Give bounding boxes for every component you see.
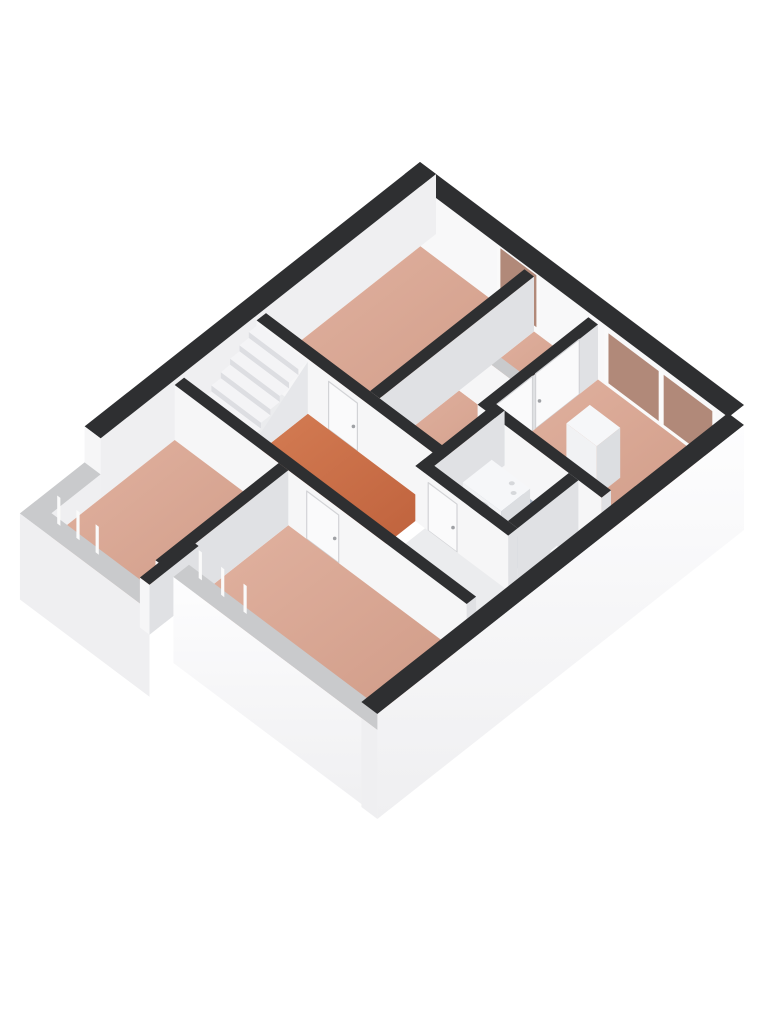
- window-bottom-low-post-2: [244, 584, 247, 614]
- se-wall-end-face: [361, 718, 377, 819]
- floor-plan-3d: [0, 0, 768, 1024]
- window-right-double-mullion: [659, 367, 664, 427]
- door-bathroom-handle: [451, 526, 455, 530]
- window-right-double-frame-left: [604, 326, 608, 385]
- floor-plan-stage: [0, 0, 768, 1024]
- window-left-low-post-0: [57, 496, 60, 526]
- door-closet-left-handle: [538, 399, 542, 403]
- door-top-bedroom-handle: [352, 425, 356, 429]
- window-top-tall-frame-right: [536, 273, 539, 333]
- sw-jog-wall-face-sw: [140, 578, 150, 635]
- window-left-low-post-1: [76, 510, 79, 540]
- washer-knob: [511, 491, 517, 495]
- washer-knob: [509, 481, 515, 485]
- window-bottom-low-post-0: [199, 550, 202, 580]
- door-bottom-bedroom-handle: [333, 537, 337, 541]
- window-left-low-post-2: [96, 524, 99, 554]
- window-bottom-low-post-1: [221, 567, 224, 597]
